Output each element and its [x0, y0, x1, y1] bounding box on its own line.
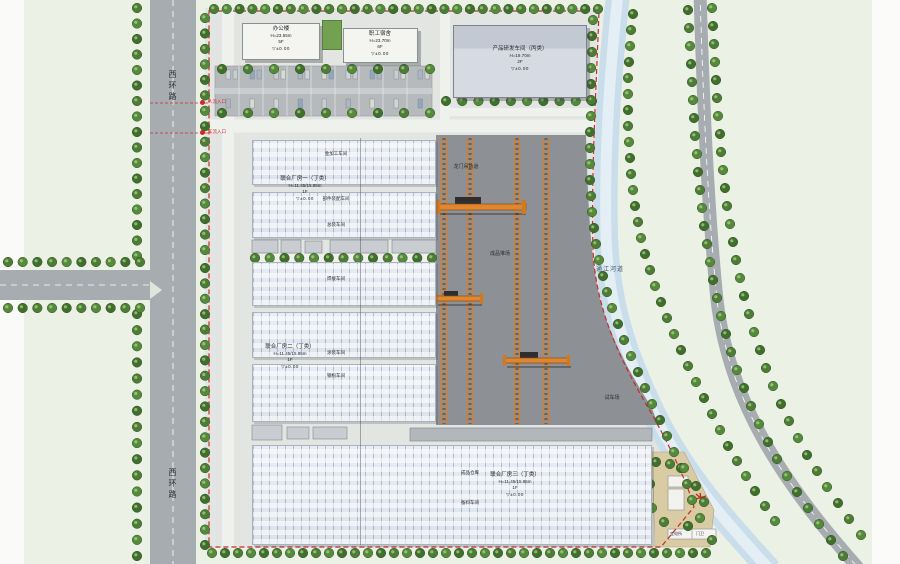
bay-label-2: 部件装配车间 [323, 196, 350, 202]
west-road-label-bottom: 西环路 [167, 468, 178, 501]
river-label: 通江河道 [596, 264, 624, 273]
people-entrance-marker [200, 100, 205, 105]
vehicle-entrance-label: 车流入口 [208, 129, 226, 135]
bay-label-1: 金加工车间 [325, 151, 348, 157]
west-road-label-top: 西环路 [167, 70, 178, 103]
office-label: 办公楼 H=23.55m 5F ▽±0.00 [271, 26, 292, 52]
hall2-roof-a [252, 262, 436, 306]
research-label: 产品研发车间（丙类） H=19.70m 2F ▽±0.00 [492, 46, 547, 72]
bay-label-7: 成品仓库 [461, 470, 479, 476]
hall3-label: 联合厂房三（丁类） H=11.45/15.95m 1F ▽±0.00 [490, 472, 540, 498]
hall3-roof [252, 445, 652, 545]
plaza-green [322, 20, 342, 50]
bay-label-5: 涂装车间 [327, 350, 345, 356]
test-yard-label: 试车场 [604, 394, 619, 401]
bay-label-8: 备料车间 [461, 500, 479, 506]
column-grid-line [360, 138, 361, 545]
people-entrance-label: 人流入口 [208, 99, 226, 105]
crane-rail-label: 龙门吊轨道 [453, 163, 478, 170]
loading-canopy [410, 428, 652, 441]
bay-label-3: 总装车间 [327, 222, 345, 228]
right-margin [872, 0, 900, 564]
site-plan: 办公楼 H=23.55m 5F ▽±0.00 职工宿舍 H=23.70m 6F … [0, 0, 900, 564]
hall2-label: 联合厂房二（丁类） H=11.45/15.95m 1F ▽±0.00 [265, 344, 315, 370]
vehicle-entrance-marker [200, 130, 205, 135]
gatehouse-label: 门卫 [696, 531, 704, 537]
office-name: 办公楼 [271, 26, 292, 33]
substation-label: 变电所 [670, 531, 682, 537]
dorm-label: 职工宿舍 H=23.70m 6F ▽±0.00 [369, 31, 391, 57]
bay-label-6: 钢构车间 [327, 373, 345, 379]
bay-label-4: 焊接车间 [327, 276, 345, 282]
stock-yard-label: 成品堆场 [490, 250, 510, 257]
